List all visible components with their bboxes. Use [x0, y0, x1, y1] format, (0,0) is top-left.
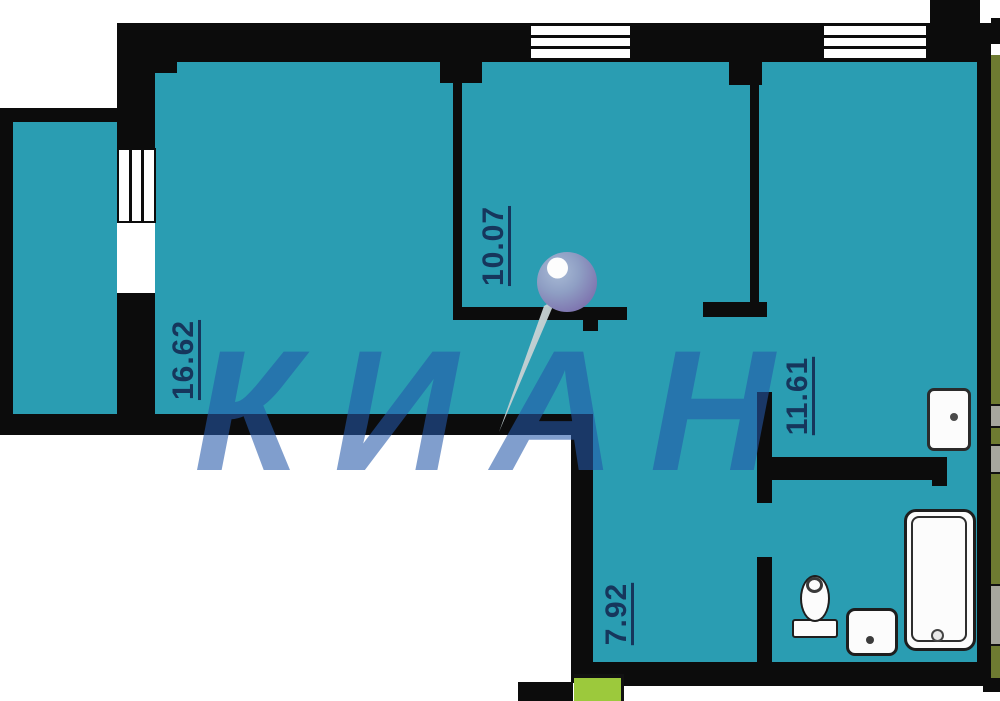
sink-drain	[866, 636, 874, 644]
entrance-door	[574, 674, 624, 701]
wall-left-outer	[0, 108, 13, 435]
wall-balcony-divider-upper	[117, 23, 155, 148]
adjacent-window	[991, 584, 1000, 646]
adjacent-window	[991, 444, 1000, 474]
washing-machine-knob	[950, 413, 958, 421]
wall-room2-left-stub	[440, 62, 482, 83]
wall-right-edge-top	[991, 18, 1000, 44]
bathtub-rim	[911, 516, 967, 642]
balcony-floor	[13, 122, 117, 415]
wall-step	[155, 62, 177, 73]
window	[117, 148, 156, 223]
pin-icon	[470, 230, 630, 445]
room-area-label: 7.92	[599, 554, 635, 674]
wall-room2-right	[750, 84, 759, 304]
adjacent-window	[991, 404, 1000, 428]
wall-bottom-right-bit	[983, 678, 1000, 692]
wall-balcony-top	[0, 108, 130, 122]
floor-plan: 16.62 10.07 11.61 7.92 КИАН	[0, 0, 1000, 701]
wall-room2-left	[453, 82, 462, 312]
toilet-hinge	[806, 577, 823, 593]
wall-room3-left-lower	[757, 557, 772, 664]
wall-bottom-left-bit	[518, 682, 573, 701]
wall-stub-top-right	[930, 0, 980, 23]
window	[822, 24, 928, 60]
sink	[846, 608, 898, 656]
wall-room2-right-stub	[729, 62, 762, 85]
wall-bottom-corridor	[593, 662, 983, 686]
window	[529, 24, 632, 60]
washing-machine	[927, 388, 971, 451]
wall-right-outer	[977, 23, 991, 686]
bathtub-drain	[931, 629, 944, 642]
wall-bathroom-top-step	[932, 457, 947, 486]
